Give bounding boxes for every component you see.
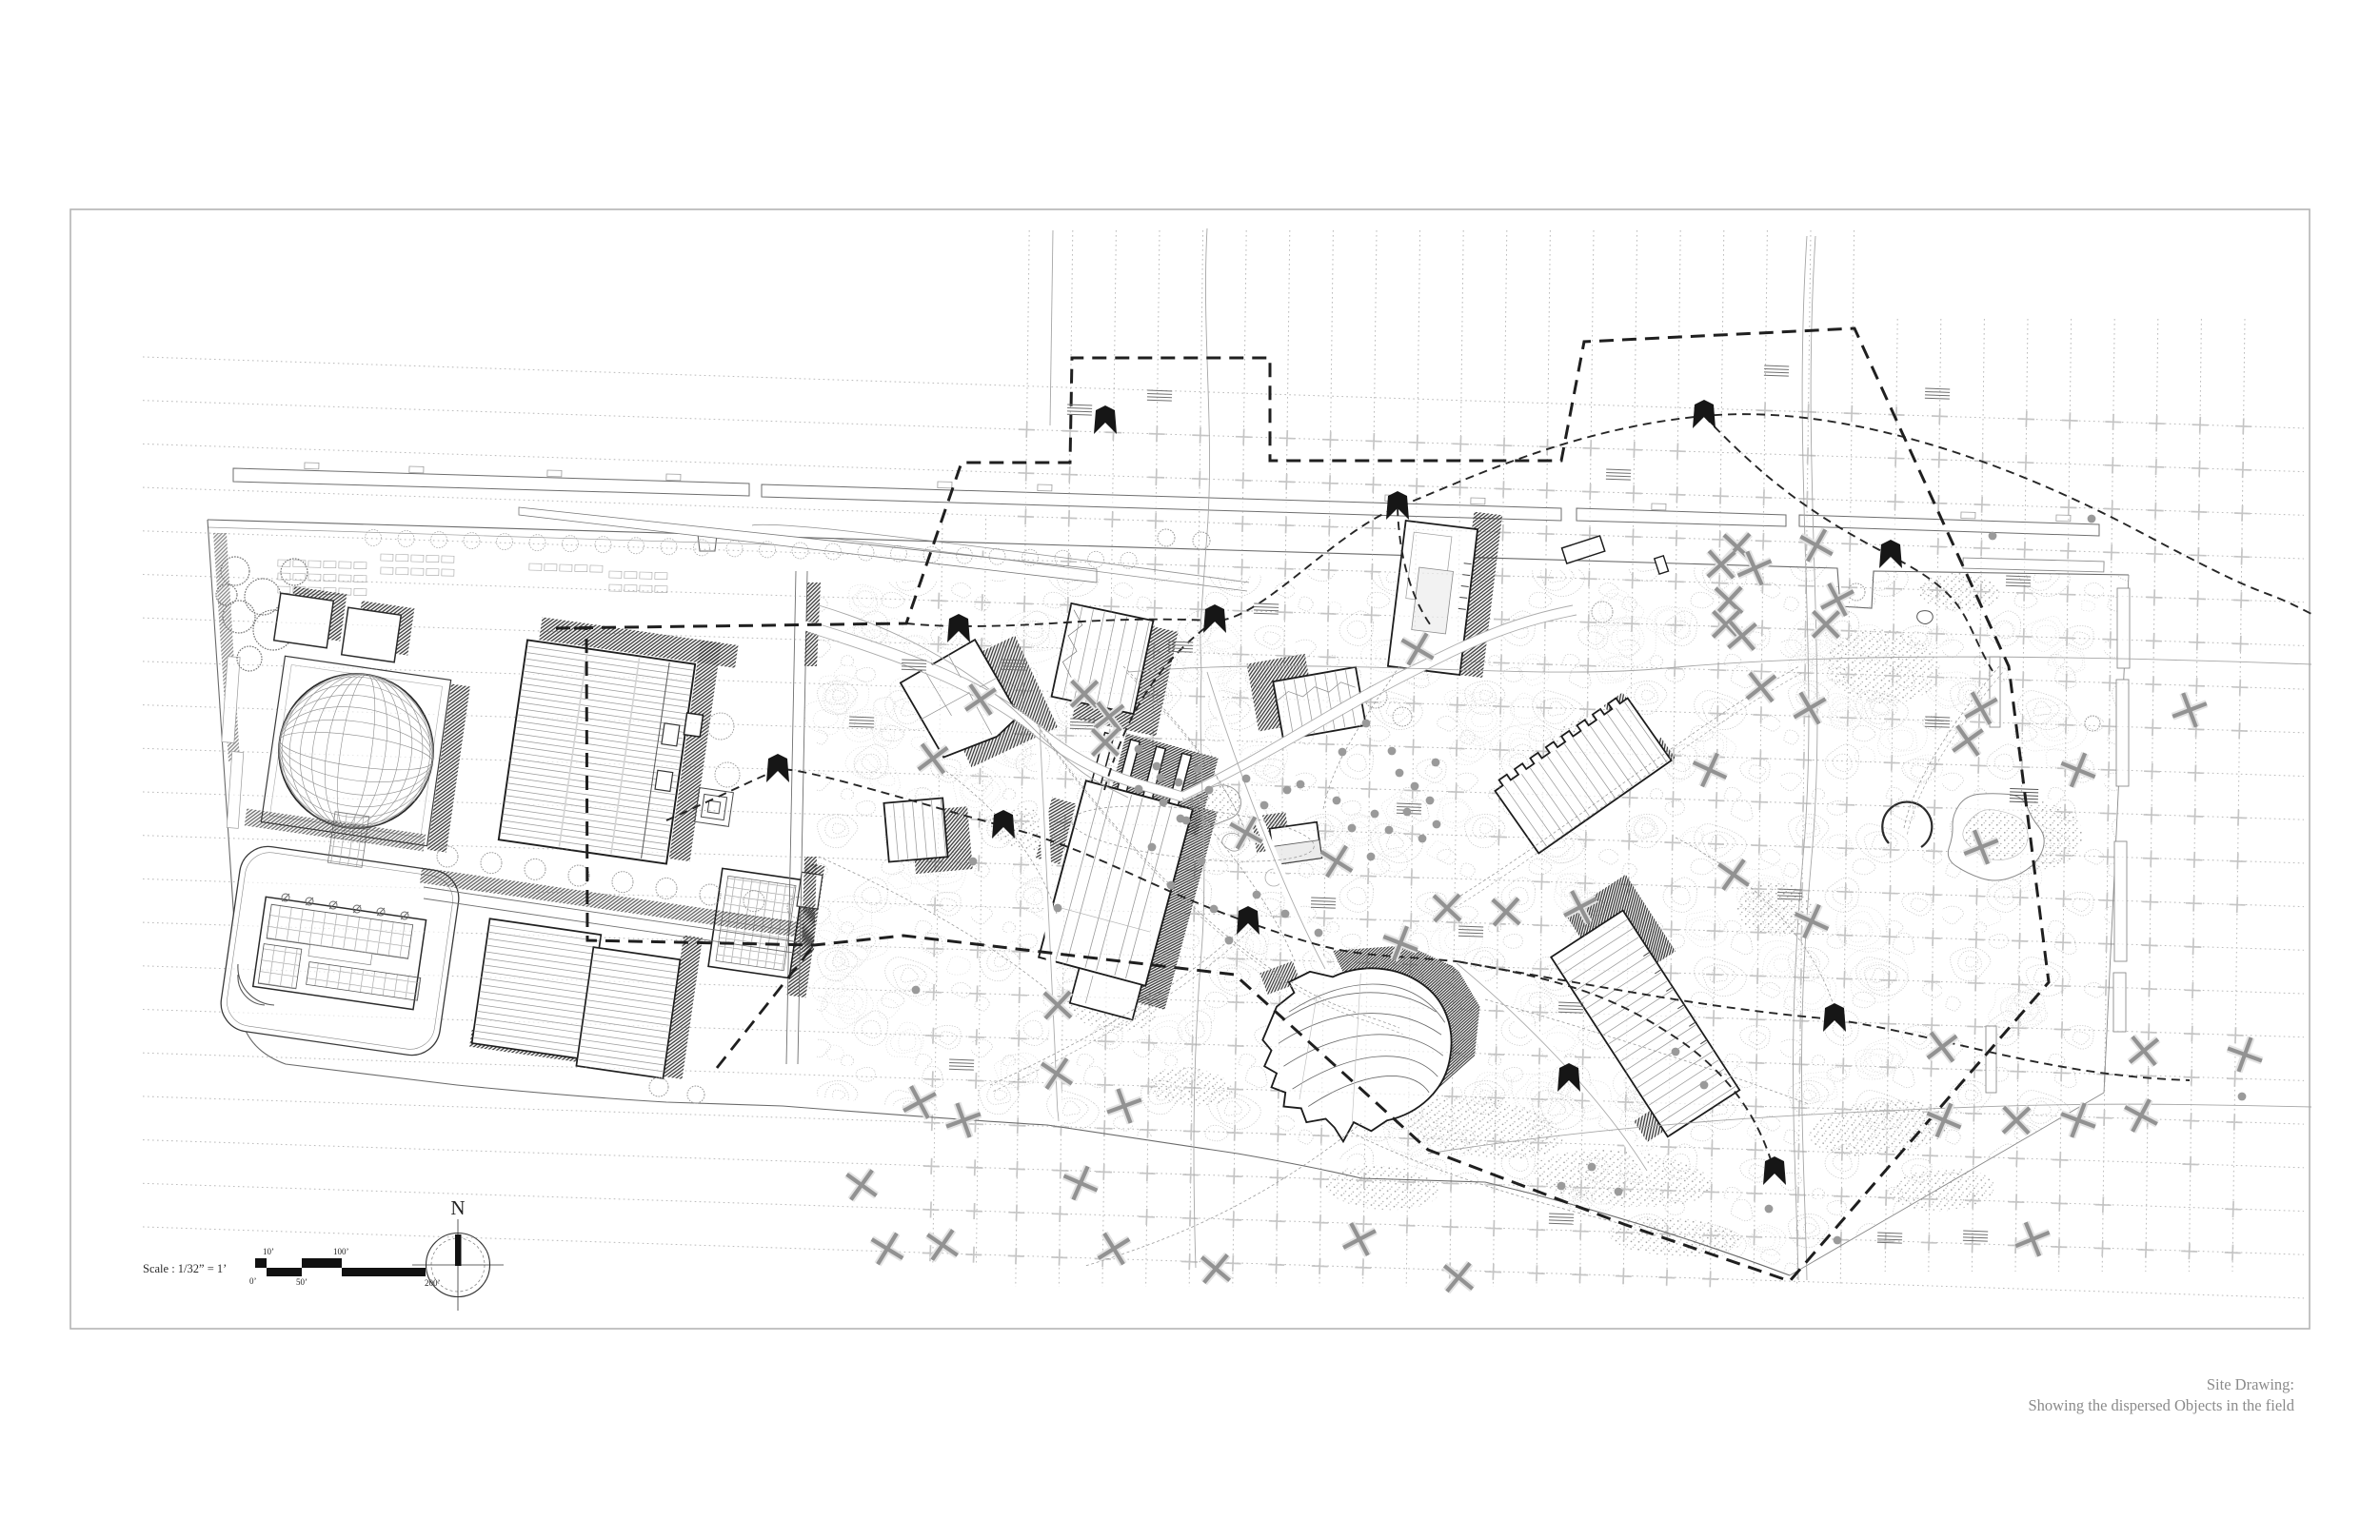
svg-text:N: N	[450, 1196, 465, 1219]
svg-text:10’: 10’	[263, 1247, 274, 1256]
svg-text:50’: 50’	[296, 1277, 307, 1287]
svg-text:Showing the dispersed Objects: Showing the dispersed Objects in the fie…	[2028, 1396, 2294, 1414]
svg-text:100’: 100’	[333, 1247, 349, 1256]
svg-text:0’: 0’	[249, 1276, 257, 1286]
svg-text:Scale : 1/32” = 1’: Scale : 1/32” = 1’	[143, 1262, 227, 1275]
svg-text:Site Drawing:: Site Drawing:	[2207, 1375, 2294, 1393]
